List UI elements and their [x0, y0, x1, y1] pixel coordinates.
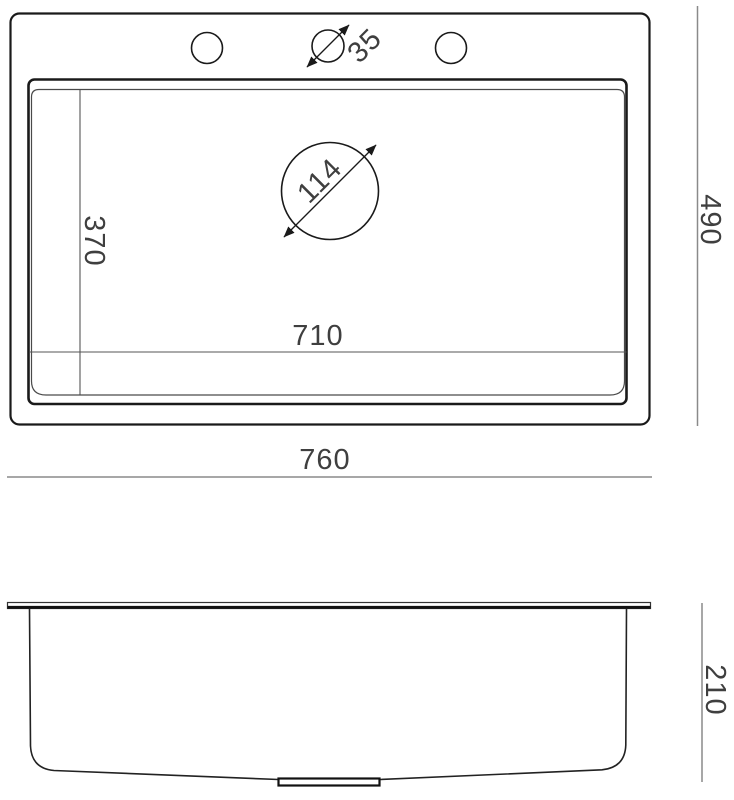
sink-drawing-linework [0, 0, 734, 800]
sink-side-view [8, 603, 703, 786]
body-left-outline [30, 609, 279, 780]
dimension-label-overall-width: 760 [265, 445, 385, 475]
body-right-outline [380, 609, 627, 780]
faucet-hole-left [192, 33, 223, 64]
dimension-label-inner-length: 710 [258, 321, 378, 351]
bowl-outer-edge [29, 80, 627, 405]
faucet-hole-right [436, 33, 467, 64]
dimension-label-overall-depth: 490 [695, 160, 725, 280]
drain-foot [279, 779, 380, 786]
dimension-label-height: 210 [700, 630, 730, 750]
technical-drawing-canvas: 710 760 370 490 210 35 114 [0, 0, 734, 800]
dimension-label-inner-depth: 370 [79, 181, 109, 301]
